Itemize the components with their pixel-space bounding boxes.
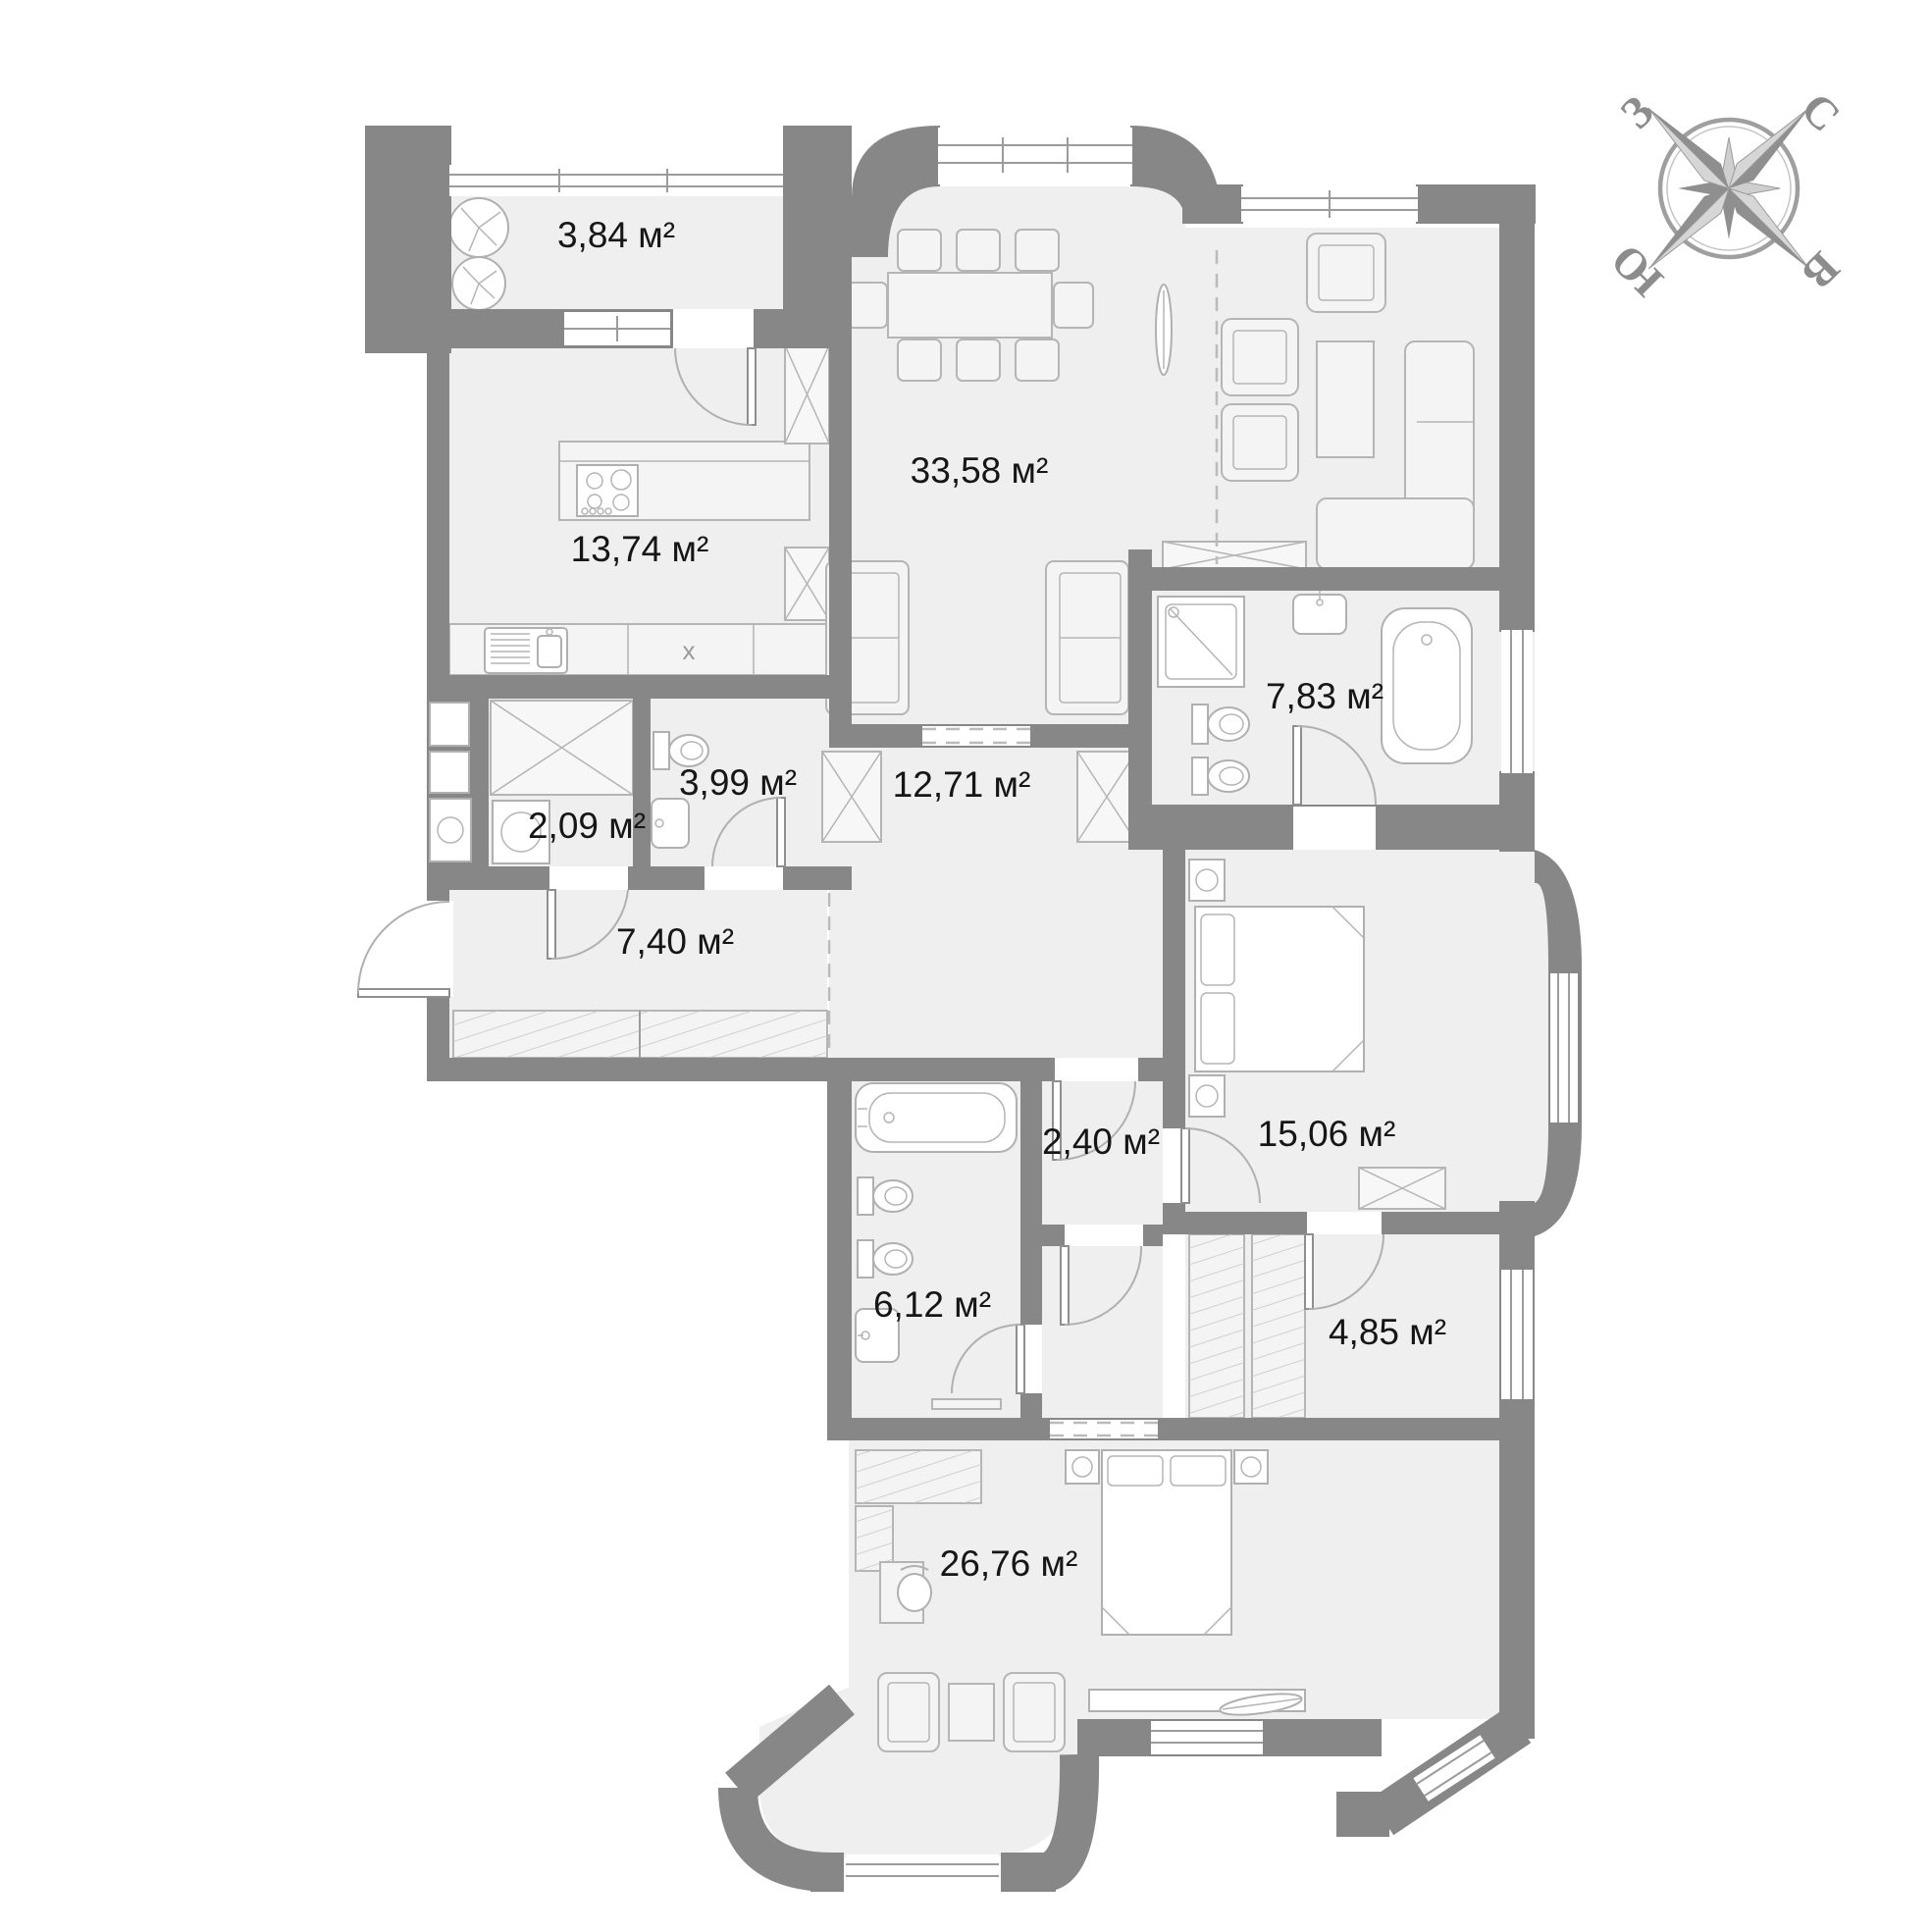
entrance-opening	[425, 901, 453, 997]
room-label-closet: 2,40 м²	[1042, 1122, 1160, 1162]
room-label-master: 26,76 м²	[940, 1543, 1078, 1584]
kitchen-counter-icon	[449, 624, 829, 675]
living-window	[1241, 186, 1418, 222]
room-label-wc: 3,99 м²	[679, 762, 797, 803]
room-label-balcony: 3,84 м²	[557, 215, 675, 255]
nightstand-icon	[1189, 860, 1225, 901]
shaft-marker: x	[683, 636, 696, 665]
bathtub-icon	[1382, 608, 1472, 763]
bathroom-window	[1501, 630, 1533, 773]
compass-north-label: С	[1792, 82, 1851, 141]
corner-sofa-icon	[1317, 498, 1474, 569]
side-table-icon	[949, 1684, 994, 1741]
compass-west-label: З	[1610, 85, 1662, 137]
room-label-bathroom-main: 7,83 м²	[1266, 676, 1384, 716]
bedroom-bay-window	[1550, 973, 1578, 1123]
floor-plan-page: 3,84 м² 13,74 м² 33,58 м² 7,83 м² 3,99 м…	[0, 0, 1932, 1932]
nightstand-icon	[1189, 1075, 1225, 1117]
dining-bay-window	[938, 128, 1132, 184]
floor-plan: 3,84 м² 13,74 м² 33,58 м² 7,83 м² 3,99 м…	[0, 0, 1932, 1932]
kitchen-window	[564, 312, 670, 345]
entry-wardrobe-icon	[453, 1011, 827, 1058]
bed-icon	[1102, 1450, 1231, 1635]
room-label-laundry: 2,09 м²	[528, 806, 646, 846]
balcony-door-opening	[673, 309, 754, 348]
room-label-entry-hall: 7,40 м²	[616, 921, 734, 962]
coffee-table-icon	[1317, 341, 1374, 457]
balcony-window	[449, 165, 783, 196]
toilet-icon	[1192, 705, 1249, 744]
bidet-icon	[1192, 757, 1249, 795]
desk-chair-icon	[898, 1574, 931, 1611]
compass-rose: С З В Ю	[1601, 82, 1851, 306]
compass-east-label: В	[1793, 242, 1850, 299]
room-label-kitchen: 13,74 м²	[571, 529, 709, 569]
compass-south-label: Ю	[1601, 235, 1673, 307]
bed-icon	[1195, 907, 1364, 1071]
nightstand-icon	[1066, 1450, 1099, 1484]
bidet-icon	[858, 1240, 913, 1278]
master-bay-window	[846, 1854, 999, 1890]
dressing-window	[1501, 1270, 1533, 1399]
wall-niches	[430, 703, 471, 862]
sink-icon	[652, 799, 689, 848]
kitchen-island-icon	[559, 442, 809, 520]
compass-long-points	[1648, 108, 1809, 269]
room-label-hall-central: 12,71 м²	[893, 764, 1031, 805]
room-label-bedroom: 15,06 м²	[1258, 1114, 1396, 1154]
room-label-bathroom-second: 6,12 м²	[873, 1284, 991, 1325]
room-label-dining: 33,58 м²	[911, 450, 1049, 491]
nightstand-icon	[1234, 1450, 1268, 1484]
master-window	[1151, 1721, 1263, 1754]
room-label-dressing: 4,85 м²	[1329, 1312, 1446, 1352]
toilet-icon	[858, 1177, 913, 1215]
